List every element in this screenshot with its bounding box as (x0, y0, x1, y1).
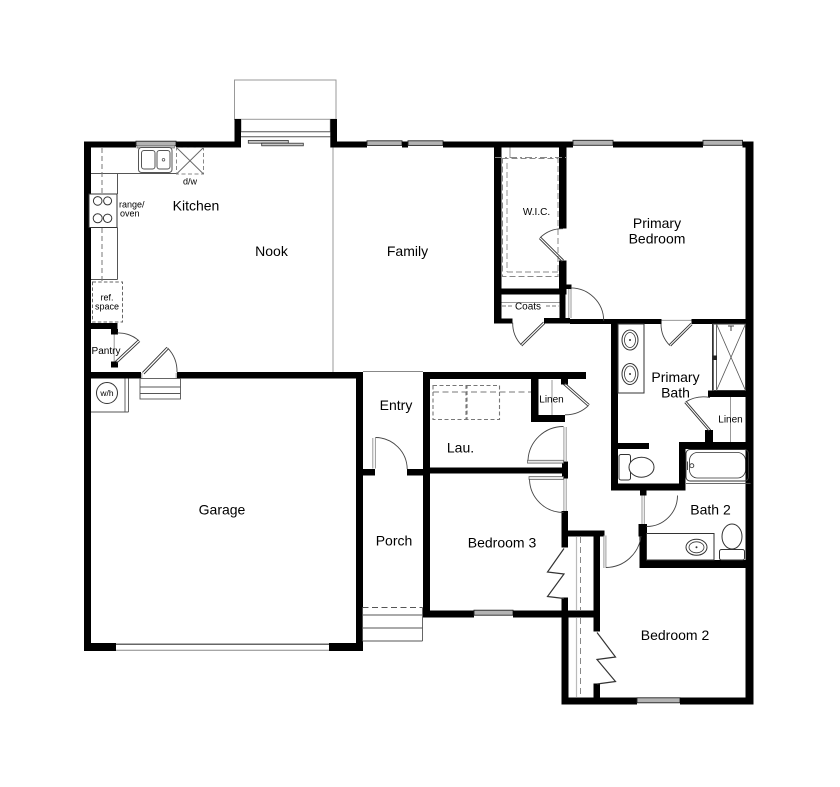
svg-text:Pantry: Pantry (92, 346, 121, 357)
svg-text:space: space (95, 302, 119, 312)
svg-text:d/w: d/w (183, 177, 198, 187)
svg-text:Bedroom 3: Bedroom 3 (468, 535, 537, 551)
svg-text:Linen: Linen (539, 395, 563, 406)
svg-text:Porch: Porch (376, 533, 413, 549)
svg-text:Primary: Primary (633, 215, 681, 231)
svg-text:w/h: w/h (99, 388, 114, 398)
svg-text:Bath: Bath (661, 385, 690, 401)
svg-text:Nook: Nook (255, 243, 289, 259)
svg-text:Primary: Primary (651, 369, 699, 385)
svg-text:Lau.: Lau. (447, 440, 474, 456)
svg-text:oven: oven (120, 209, 140, 219)
svg-text:Bath 2: Bath 2 (690, 502, 731, 518)
svg-text:Bedroom 2: Bedroom 2 (641, 627, 710, 643)
svg-text:Garage: Garage (199, 502, 246, 518)
svg-text:Bedroom: Bedroom (629, 231, 686, 247)
svg-text:Kitchen: Kitchen (173, 198, 220, 214)
svg-text:Coats: Coats (515, 302, 541, 313)
svg-text:Entry: Entry (380, 397, 413, 413)
svg-text:Family: Family (387, 243, 428, 259)
svg-text:Linen: Linen (718, 415, 742, 426)
svg-text:W.I.C.: W.I.C. (523, 207, 550, 218)
